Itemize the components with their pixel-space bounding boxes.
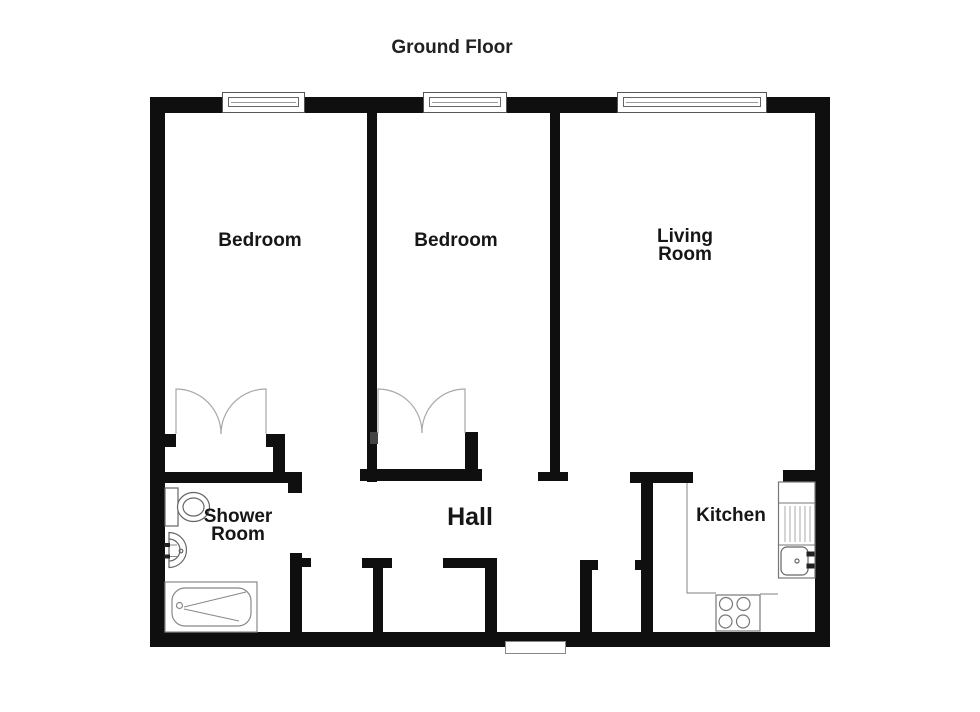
living-room-label-line2: Room [658,244,712,265]
wash-basin-icon [164,533,186,568]
fixtures-layer [0,0,980,712]
kitchen-counter-edge-line [687,483,778,594]
shower-room-label-line2: Room [211,524,265,545]
floor-plan: Ground Floor [0,0,980,712]
hall-label: Hall [447,508,493,526]
bathtub-icon [165,582,257,632]
floor-title: Ground Floor [391,37,512,59]
wardrobe-doors-bedroom2-icon [378,389,465,433]
wardrobe-doors-bedroom1-icon [176,389,266,434]
entrance-door [505,641,566,654]
kitchen-label: Kitchen [696,507,766,525]
bedroom2-label: Bedroom [414,232,497,250]
bedroom1-label: Bedroom [218,232,301,250]
living-room-label: LivingRoom [657,228,713,264]
stove-hob-icon [716,595,760,631]
shower-room-label: ShowerRoom [204,508,273,544]
kitchen-sink-icon [779,482,816,578]
